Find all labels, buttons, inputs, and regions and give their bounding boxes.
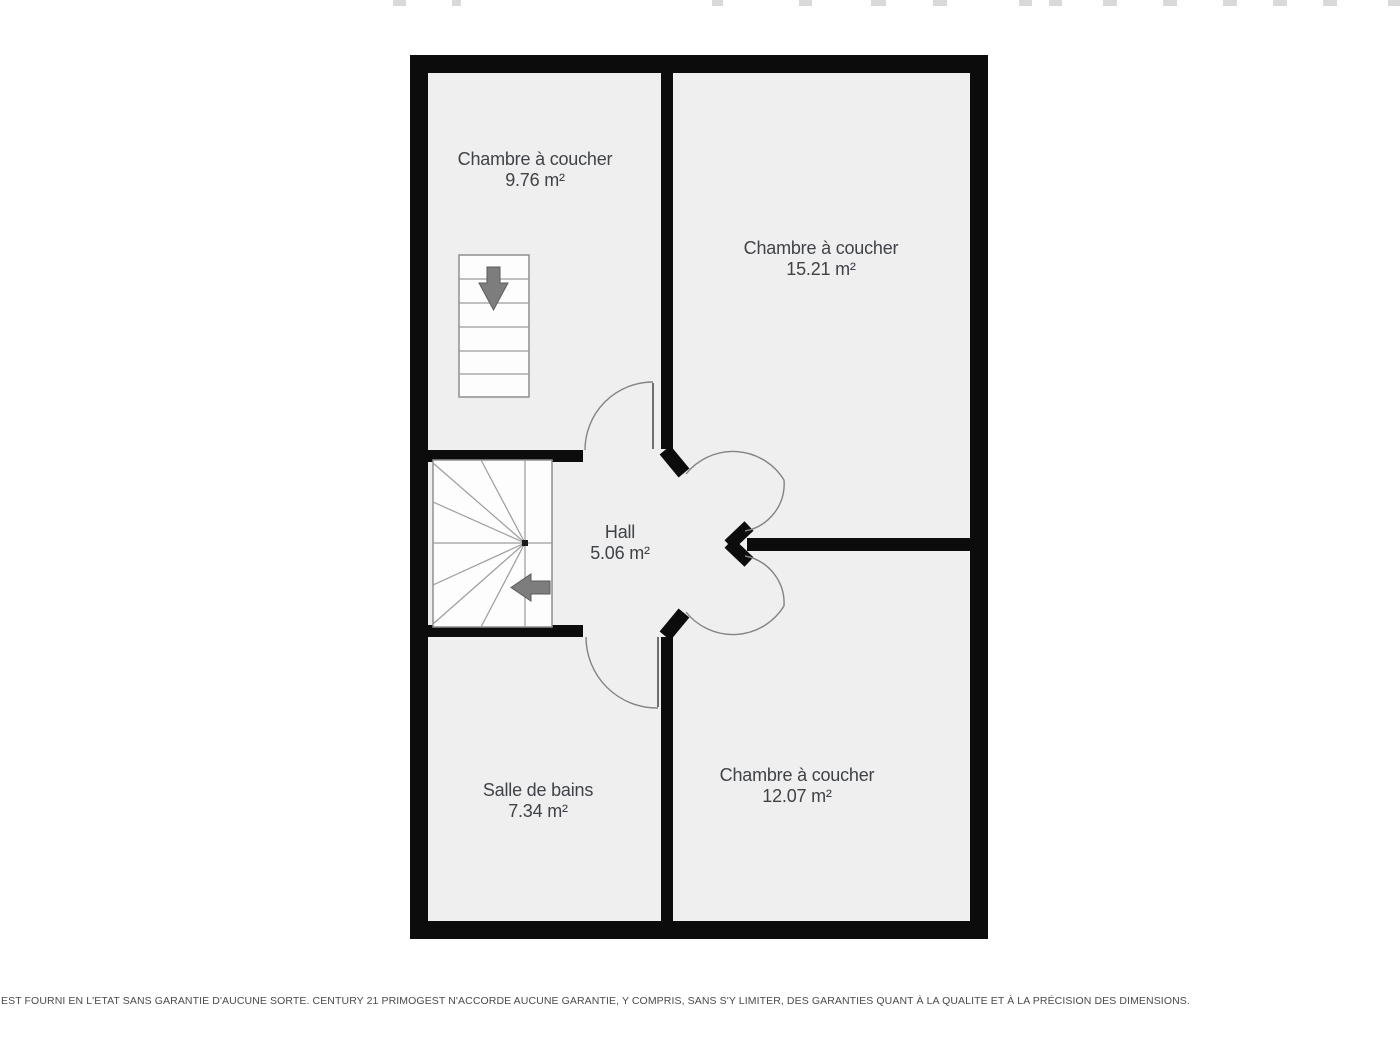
- room-name: Chambre à coucher: [744, 238, 899, 259]
- room-area: 5.06 m²: [590, 543, 650, 564]
- disclaimer-text: EST FOURNI EN L'ETAT SANS GARANTIE D'AUC…: [1, 995, 1190, 1007]
- room-name: Salle de bains: [483, 780, 593, 801]
- winder-staircase: [433, 460, 552, 627]
- floorplan-page: Chambre à coucher 9.76 m² Chambre à couc…: [0, 0, 1400, 1050]
- room-name: Hall: [590, 522, 650, 543]
- room-label-bathroom: Salle de bains 7.34 m²: [483, 780, 593, 822]
- wall-divider-top: [661, 73, 673, 449]
- room-name: Chambre à coucher: [458, 149, 613, 170]
- room-label-bedroom-1: Chambre à coucher 9.76 m²: [458, 149, 613, 191]
- room-label-bedroom-2: Chambre à coucher 15.21 m²: [744, 238, 899, 280]
- wall-mid-right: [747, 538, 970, 551]
- floorplan-drawing: [0, 0, 1400, 1050]
- room-area: 9.76 m²: [458, 170, 613, 191]
- wall-divider-bottom: [661, 637, 673, 921]
- room-label-bedroom-3: Chambre à coucher 12.07 m²: [720, 765, 875, 807]
- stair-newel-post: [522, 540, 528, 546]
- room-area: 7.34 m²: [483, 801, 593, 822]
- straight-staircase: [459, 255, 529, 397]
- room-area: 12.07 m²: [720, 786, 875, 807]
- room-area: 15.21 m²: [744, 259, 899, 280]
- room-name: Chambre à coucher: [720, 765, 875, 786]
- room-label-hall: Hall 5.06 m²: [590, 522, 650, 564]
